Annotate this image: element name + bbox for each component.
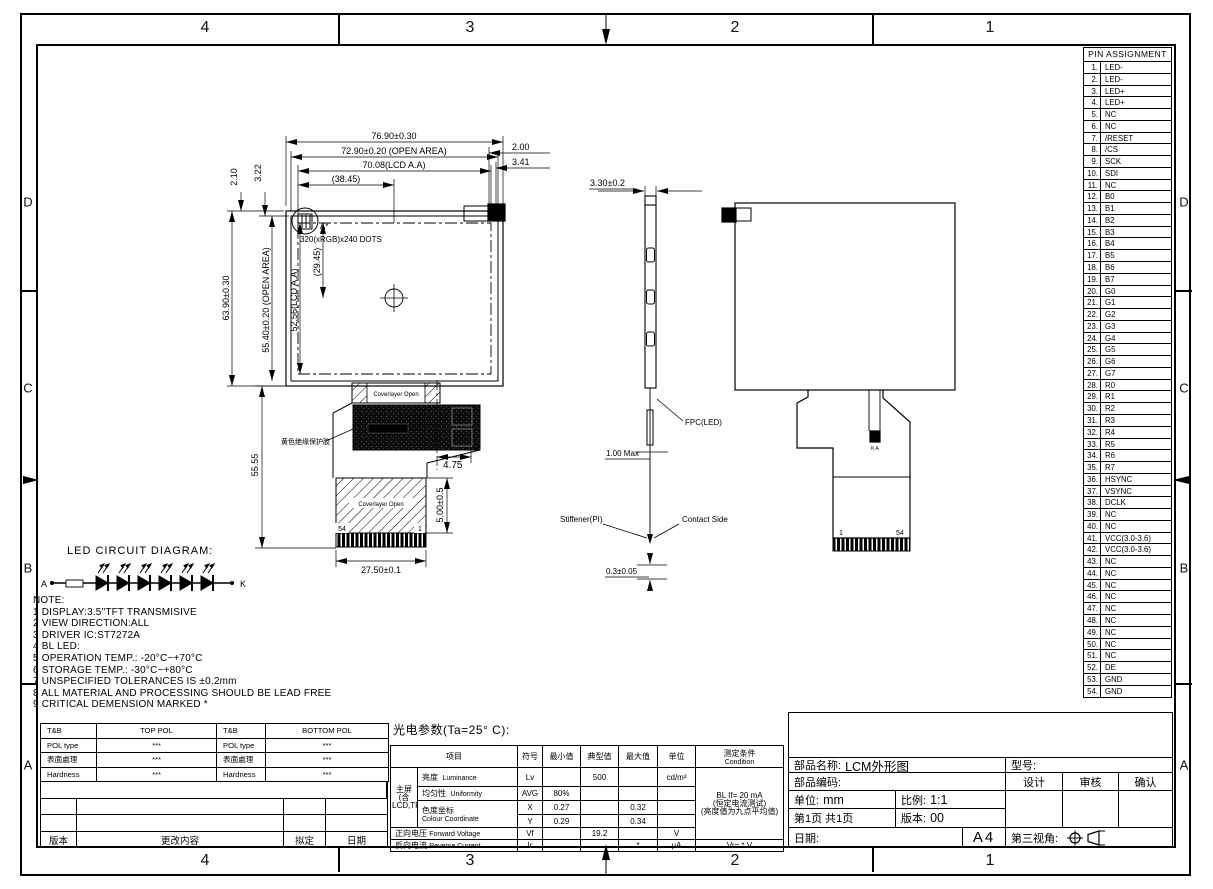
pol-cell: *** xyxy=(266,753,389,768)
contact-fingers xyxy=(336,533,426,547)
pin-row: 2.LED- xyxy=(1084,74,1171,86)
dim-left-a: 2.10 xyxy=(229,168,239,186)
dim-fpc-length: 55.55 xyxy=(250,454,260,477)
rear-view-texts: 1 54 K A xyxy=(839,446,904,537)
pin-row: 32.R4 xyxy=(1084,427,1171,439)
dim-fpc-width: 27.50±0.1 xyxy=(361,565,401,575)
coverlayer-open-top-label: Coverlayer Open xyxy=(373,392,418,398)
review-signature-cell xyxy=(1063,791,1119,828)
side-view xyxy=(645,196,656,544)
pin-row: 36.HSYNC xyxy=(1084,474,1171,486)
pin-row: 30.R2 xyxy=(1084,403,1171,415)
dim-contact-length: 5.00±0.5 xyxy=(435,488,445,523)
note-line: 3 DRIVER IC:ST7272A xyxy=(33,631,405,642)
pin-row: 7./RESET xyxy=(1084,133,1171,145)
opt-header-item: 项目 xyxy=(391,746,518,768)
opt-condition-cell: BL If= 20 mA(恒定电流测试)(亮度值为九点平均值) xyxy=(696,768,784,840)
revision-header-content: 更改内容 xyxy=(77,832,284,847)
opt-empty xyxy=(543,768,581,787)
note-lines: 1 DISPLAY:3.5"TFT TRANSMISIVE2 VIEW DIRE… xyxy=(33,608,405,711)
side-view-texts: 3.30±0.2 FPC(LED) 1.00 Max Stiffener(PI)… xyxy=(560,178,728,576)
opt-empty xyxy=(581,815,619,828)
rear-pin54-mark: 54 xyxy=(896,530,904,537)
led-circuit-diagram: LED CIRCUIT DIAGRAM: A K xyxy=(41,545,246,591)
pin-row: 28.R0 xyxy=(1084,380,1171,392)
rear-led-connector xyxy=(870,431,880,442)
revision-table: 版本 更改内容 拟定 日期 xyxy=(40,781,388,848)
pin-row: 51.NC xyxy=(1084,650,1171,662)
opt-vf-typ: 19.2 xyxy=(581,828,619,840)
pol-cell: 表面處理 xyxy=(217,753,266,768)
pin-row: 11.NC xyxy=(1084,180,1171,192)
dim-width-outline: 76.90±0.30 xyxy=(372,131,417,141)
design-cell: 设计 xyxy=(1006,773,1063,791)
scale-cell: 比例:1:1 xyxy=(896,791,1006,809)
opt-avg-min: 80% xyxy=(543,787,581,801)
revision-cell xyxy=(326,815,387,832)
pin-row: 27.G7 xyxy=(1084,368,1171,380)
page-cell: 第1页 共1页 xyxy=(789,809,896,828)
dim-height-open: 55.40±0.20 (OPEN AREA) xyxy=(261,247,271,353)
revision-cell xyxy=(41,815,77,832)
pin-row: 34.R6 xyxy=(1084,450,1171,462)
pol-cell: *** xyxy=(97,753,217,768)
dim-height-outline: 63.90±0.30 xyxy=(221,276,231,321)
pin-row: 23.G3 xyxy=(1084,321,1171,333)
pin-row: 6.NC xyxy=(1084,121,1171,133)
pol-cell: TOP POL xyxy=(97,724,217,739)
rear-pin1-mark: 1 xyxy=(839,530,843,537)
pin-row: 43.NC xyxy=(1084,556,1171,568)
opt-lv-typ: 500 xyxy=(581,768,619,787)
pin-row: 41.VCC(3.0-3.6) xyxy=(1084,533,1171,545)
pol-cell: POL type xyxy=(41,738,97,753)
pol-cell: POL type xyxy=(217,738,266,753)
pin-row: 54.GND xyxy=(1084,686,1171,698)
opt-header-condition: 测定条件Condition xyxy=(696,746,784,768)
coverlayer-open-bottom-label: Coverlayer Open xyxy=(358,502,403,508)
confirm-cell: 确认 xyxy=(1119,773,1172,791)
pol-cell: *** xyxy=(266,767,389,782)
review-cell: 审核 xyxy=(1063,773,1119,791)
pin-row: 35.R7 xyxy=(1084,462,1171,474)
pin-row: 29.R1 xyxy=(1084,391,1171,403)
part-name-cell: 部品名称:LCM外形图 xyxy=(789,758,1006,773)
date-cell: 日期: xyxy=(789,828,963,847)
note-line: 9 CRITICAL DEMENSION MARKED * xyxy=(33,700,405,711)
pin-row: 40.NC xyxy=(1084,521,1171,533)
opt-empty xyxy=(658,787,696,801)
polarizer-table: T&BTOP POLT&BBOTTOM POLPOL type***POL ty… xyxy=(40,723,389,782)
fpc-led-label: FPC(LED) xyxy=(685,418,722,427)
led-symbol xyxy=(138,576,150,590)
pin-row: 44.NC xyxy=(1084,568,1171,580)
opt-sym-ir: Ir xyxy=(518,840,543,852)
opt-empty xyxy=(619,828,658,840)
opt-ir-max: * xyxy=(619,840,658,852)
pin1-mark: 1 xyxy=(418,526,422,533)
pin-row: 5.NC xyxy=(1084,109,1171,121)
pol-cell: 表面處理 xyxy=(41,753,97,768)
opt-sym-vf: Vf xyxy=(518,828,543,840)
confirm-signature-cell xyxy=(1119,791,1172,828)
opt-empty xyxy=(658,815,696,828)
rear-contact-fingers xyxy=(833,538,910,551)
pin-row: 18.B6 xyxy=(1084,262,1171,274)
opt-empty xyxy=(658,801,696,815)
pin-row: 53.GND xyxy=(1084,674,1171,686)
detail-circle xyxy=(292,208,318,234)
pin-table-title: PIN ASSIGNMENT xyxy=(1084,48,1171,62)
pol-cell: *** xyxy=(97,738,217,753)
pin-row: 26.G6 xyxy=(1084,356,1171,368)
opt-item-uniformity: 均匀性 Uniformity xyxy=(418,787,518,801)
design-signature-cell xyxy=(1006,791,1063,828)
revision-empty-row xyxy=(41,782,387,799)
opt-sym-lv: Lv xyxy=(518,768,543,787)
opt-empty xyxy=(581,787,619,801)
dim-left-b: 3.22 xyxy=(253,164,263,182)
pol-cell: *** xyxy=(266,738,389,753)
dim-right-bottom: 3.41 xyxy=(512,157,530,167)
opt-empty xyxy=(581,801,619,815)
notes-block: NOTE: 1 DISPLAY:3.5"TFT TRANSMISIVE2 VIE… xyxy=(33,596,405,712)
opt-empty xyxy=(543,840,581,852)
opt-item-chromaticity: 色度坐标Colour Coordinate xyxy=(418,801,518,828)
opt-vf-unit: V xyxy=(658,828,696,840)
revision-header-version: 版本 xyxy=(41,832,77,847)
pol-cell: *** xyxy=(97,767,217,782)
pin-row: 33.R5 xyxy=(1084,439,1171,451)
opt-x-min: 0.27 xyxy=(543,801,581,815)
note-line: 1 DISPLAY:3.5"TFT TRANSMISIVE xyxy=(33,608,405,619)
rear-view xyxy=(722,203,955,551)
revision-header-drafted: 拟定 xyxy=(284,832,326,847)
rear-led-mark xyxy=(722,208,736,222)
opt-y-max: 0.34 xyxy=(619,815,658,828)
opt-header-unit: 单位 xyxy=(658,746,696,768)
pin-row: 24.G4 xyxy=(1084,333,1171,345)
dim-thickness: 3.30±0.2 xyxy=(590,178,625,188)
pin-row: 46.NC xyxy=(1084,591,1171,603)
third-angle-projection-icon xyxy=(1066,830,1106,846)
pin-row: 15.B3 xyxy=(1084,227,1171,239)
revision-cell xyxy=(77,815,284,832)
opt-header-min: 最小值 xyxy=(543,746,581,768)
pin-row: 1.LED- xyxy=(1084,62,1171,74)
pol-cell: BOTTOM POL xyxy=(266,724,389,739)
glue-label: 黄色绝缘保护胶 xyxy=(281,437,330,446)
pin-row: 49.NC xyxy=(1084,627,1171,639)
led-symbol xyxy=(96,576,108,590)
pin-row: 25.G5 xyxy=(1084,344,1171,356)
pin-row: 21.G1 xyxy=(1084,297,1171,309)
pin-row: 16.B4 xyxy=(1084,238,1171,250)
drawing-sheet: 4 3 2 1 4 3 2 1 D C B A D C B A xyxy=(0,0,1213,889)
pin-rows: 1.LED-2.LED-3.LED+4.LED+5.NC6.NC7./RESET… xyxy=(1084,62,1171,697)
pin-row: 31.R3 xyxy=(1084,415,1171,427)
detail-label: A* xyxy=(320,222,328,231)
pin-row: 47.NC xyxy=(1084,603,1171,615)
note-line: 7 UNSPECIFIED TOLERANCES IS ±0.2mm xyxy=(33,677,405,688)
opt-item-vf: 正向电压 Forward Voltage xyxy=(391,828,518,840)
pin-row: 42.VCC(3.0-3.6) xyxy=(1084,544,1171,556)
dim-height-half: (29.45) xyxy=(312,248,322,277)
pin-row: 9.SCK xyxy=(1084,156,1171,168)
pin-row: 19.B7 xyxy=(1084,274,1171,286)
paper-size-cell: A4 xyxy=(963,828,1006,847)
pin-row: 13.B1 xyxy=(1084,203,1171,215)
dim-max: 1.00 Max xyxy=(606,449,639,458)
pin-row: 14.B2 xyxy=(1084,215,1171,227)
opt-header-typ: 典型值 xyxy=(581,746,619,768)
opt-empty xyxy=(543,828,581,840)
pin-row: 45.NC xyxy=(1084,580,1171,592)
opt-lv-unit: cd/m² xyxy=(658,768,696,787)
pin-row: 39.NC xyxy=(1084,509,1171,521)
revision-header-date: 日期 xyxy=(326,832,387,847)
pin-row: 8./CS xyxy=(1084,144,1171,156)
dim-width-open: 72.90±0.20 (OPEN AREA) xyxy=(341,146,447,156)
optical-table-title: 光电参数(Ta=25° C): xyxy=(393,721,510,738)
opt-empty xyxy=(581,840,619,852)
revision-cell xyxy=(41,799,77,815)
pin-row: 3.LED+ xyxy=(1084,86,1171,98)
opt-header-symbol: 符号 xyxy=(518,746,543,768)
led-diodes xyxy=(96,564,214,591)
opt-sym-avg: AVG xyxy=(518,787,543,801)
bl-window xyxy=(464,206,488,221)
pin-row: 4.LED+ xyxy=(1084,97,1171,109)
revision-cell xyxy=(284,815,326,832)
title-block-remarks xyxy=(789,713,1172,758)
pin-row: 17.B5 xyxy=(1084,250,1171,262)
pin-row: 52.DE xyxy=(1084,662,1171,674)
dim-fpc-offset: 4.75 xyxy=(443,460,463,471)
model-cell: 型号: xyxy=(1006,758,1172,773)
led-anode-label: A xyxy=(41,579,47,589)
bl-led-mark xyxy=(488,204,505,221)
rear-outline xyxy=(735,203,955,390)
note-line: 4 BL LED: xyxy=(33,642,405,653)
opt-sym-x: X xyxy=(518,801,543,815)
unit-cell: 单位:mm xyxy=(789,791,896,809)
led-symbol xyxy=(159,576,171,590)
pin-row: 22.G2 xyxy=(1084,309,1171,321)
opt-header-max: 最大值 xyxy=(619,746,658,768)
pin-row: 20.G0 xyxy=(1084,286,1171,298)
pin-row: 38.DCLK xyxy=(1084,497,1171,509)
projection-cell: 第三视角: xyxy=(1006,828,1172,847)
pol-cell: T&B xyxy=(41,724,97,739)
opt-item-luminance: 亮度 Luminance xyxy=(418,768,518,787)
optical-parameters-table: 项目 符号 最小值 典型值 最大值 单位 测定条件Condition 主屏(含L… xyxy=(390,745,784,852)
notes-title: NOTE: xyxy=(33,596,405,607)
opt-empty xyxy=(619,787,658,801)
resolution-label: 320(xRGB)x240 DOTS xyxy=(300,235,382,244)
opt-item-ir: 反向电流 Reverse Current xyxy=(391,840,518,852)
led-diagram-title: LED CIRCUIT DIAGRAM: xyxy=(67,545,213,557)
pin-assignment-table: PIN ASSIGNMENT 1.LED-2.LED-3.LED+4.LED+5… xyxy=(1083,47,1172,698)
dim-height-aa: 52.56(LCD A.A) xyxy=(289,268,299,331)
note-line: 6 STORAGE TEMP.: -30°C~+80°C xyxy=(33,666,405,677)
version-cell: 版本:00 xyxy=(896,809,1006,828)
opt-y-min: 0.29 xyxy=(543,815,581,828)
pin-row: 48.NC xyxy=(1084,615,1171,627)
led-cathode-label: K xyxy=(240,579,246,589)
revision-cell xyxy=(77,799,284,815)
rear-fpc-outline xyxy=(797,390,910,538)
pin-row: 50.NC xyxy=(1084,639,1171,651)
note-line: 5 OPERATION TEMP.: -20°C~+70°C xyxy=(33,654,405,665)
part-code-cell: 部品编码: xyxy=(789,773,1006,791)
active-area-outline xyxy=(298,223,491,374)
revision-cell xyxy=(326,799,387,815)
pol-cell: Hardness xyxy=(217,767,266,782)
note-line: 2 VIEW DIRECTION:ALL xyxy=(33,619,405,630)
led-symbol xyxy=(180,576,192,590)
pin-row: 10.SDI xyxy=(1084,168,1171,180)
pin54-mark: 54 xyxy=(338,526,346,533)
opt-x-max: 0.32 xyxy=(619,801,658,815)
opt-ir-unit: μA xyxy=(658,840,696,852)
rear-ka-mark: K A xyxy=(871,446,879,452)
pin-row: 37.VSYNC xyxy=(1084,486,1171,498)
stiffener-label: Stiffener(PI) xyxy=(560,515,603,524)
pin-row: 12.B0 xyxy=(1084,191,1171,203)
led-symbol xyxy=(201,576,213,590)
contact-side-label: Contact Side xyxy=(682,515,728,524)
title-block: 部品名称:LCM外形图 型号: 部品编码: 设计 审核 确认 单位:mm 比例:… xyxy=(788,712,1173,848)
dim-right-top: 2.00 xyxy=(512,142,530,152)
revision-cell xyxy=(284,799,326,815)
note-line: 8 ALL MATERIAL AND PROCESSING SHOULD BE … xyxy=(33,689,405,700)
opt-ir-condition: Vr= * V xyxy=(696,840,784,852)
dim-stiffener-thickness: 0.3±0.05 xyxy=(606,567,638,576)
dim-width-aa: 70.08(LCD A.A) xyxy=(362,160,425,170)
opt-empty xyxy=(619,768,658,787)
dim-width-half: (38.45) xyxy=(332,174,361,184)
pol-cell: T&B xyxy=(217,724,266,739)
led-symbol xyxy=(117,576,129,590)
pol-cell: Hardness xyxy=(41,767,97,782)
opt-sym-y: Y xyxy=(518,815,543,828)
opt-group-cell: 主屏(含LCD,TP) xyxy=(391,768,418,828)
